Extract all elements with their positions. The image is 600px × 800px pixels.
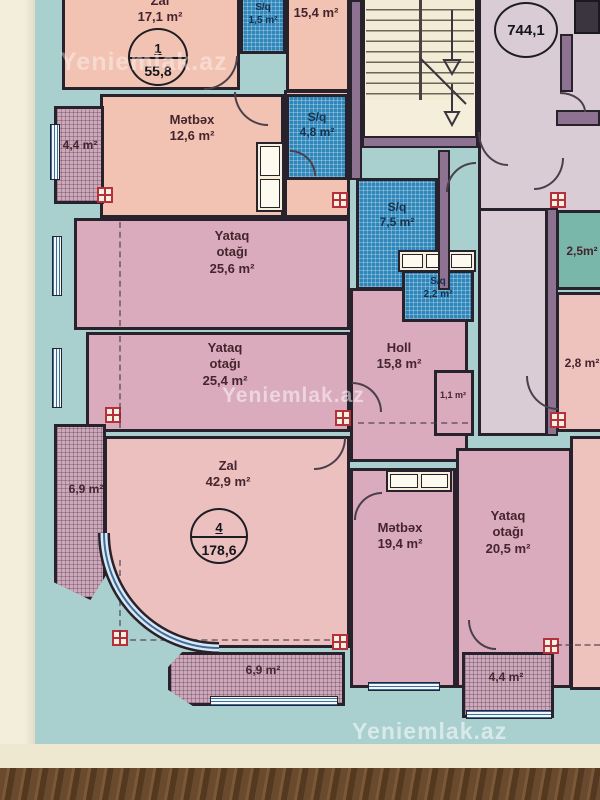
label-zal-apt4: Zal42,9 m² — [206, 458, 251, 491]
elevator-shaft — [574, 0, 600, 34]
column-icon — [543, 638, 559, 654]
window-balc69B — [210, 696, 338, 706]
column-icon — [97, 187, 113, 203]
balcony-6-9-left — [54, 424, 106, 600]
paper-bottom-strip — [0, 744, 600, 770]
label-sq-1-5: S/q1,5 m² — [249, 2, 278, 27]
column-icon — [550, 412, 566, 428]
label-balc-69-bottom: 6,9 m² — [246, 663, 281, 678]
wall-topright-v — [560, 34, 573, 92]
axis-dash — [358, 422, 468, 424]
watermark: Yeniemlak.az — [60, 48, 228, 77]
axis-dash — [556, 644, 600, 646]
label-balc-44-left: 4,4 m² — [63, 138, 98, 153]
window-balc44L — [50, 124, 60, 180]
label-metbex-apt1: Mətbəx12,6 m² — [170, 112, 215, 145]
kitchen-counter-icon — [386, 470, 452, 492]
paper-edge — [0, 0, 35, 770]
label-balc-44-bottom: 4,4 m² — [489, 670, 524, 685]
window-left-1 — [52, 236, 62, 296]
label-2-8: 2,8 m² — [565, 356, 600, 371]
axis-dash — [119, 336, 121, 428]
label-yataq-25-6: Yataqotağı25,6 m² — [210, 228, 255, 277]
wall-topright-h — [556, 110, 600, 126]
label-15-4: 15,4 m² — [294, 5, 339, 21]
balcony-4-4-bottom — [462, 652, 554, 718]
column-icon — [332, 192, 348, 208]
wall-sq75-right — [438, 150, 450, 290]
column-icon — [550, 192, 566, 208]
column-icon — [335, 410, 351, 426]
axis-dash — [119, 560, 121, 636]
washer-counter-icon — [398, 250, 476, 272]
axis-dash — [119, 222, 121, 326]
wall-stair-bottom — [362, 136, 478, 148]
label-sq-7-5: S/q7,5 m² — [380, 200, 415, 230]
label-sq-2-2: S/q2,2 m² — [424, 276, 453, 301]
window-left-2 — [52, 348, 62, 408]
stairs-divider — [419, 0, 422, 100]
label-yataq-20-5: Yataqotağı20,5 m² — [486, 508, 531, 557]
apt4-number-badge: 4 178,6 — [190, 508, 248, 564]
watermark: Yeniemlak.az — [352, 718, 507, 745]
label-balc-69-left: 6,9 m² — [69, 482, 104, 497]
floorplan-photo: Zal17,1 m² S/q1,5 m² 15,4 m² Mətbəx12,6 … — [0, 0, 600, 800]
label-1-1: 1,1 m² — [440, 390, 466, 401]
label-2-5: 2,5m² — [566, 244, 597, 259]
column-icon — [332, 634, 348, 650]
wall-stair-left — [350, 0, 362, 180]
label-metbex-apt4: Mətbəx19,4 m² — [378, 520, 423, 553]
closet-1-1 — [434, 370, 474, 436]
window-metbex4 — [368, 682, 440, 691]
label-sq-4-8: S/q4,8 m² — [300, 110, 335, 140]
building-total-badge: 744,1 — [494, 2, 558, 58]
label-holl: Holl15,8 m² — [377, 340, 422, 373]
axis-dash — [130, 639, 330, 641]
label-zal-apt1: Zal17,1 m² — [138, 0, 183, 26]
label-yataq-25-4: Yataqotağı25,4 m² — [203, 340, 248, 389]
wood-floor — [0, 768, 600, 800]
watermark: Yeniemlak.az — [222, 384, 365, 408]
room-right-cut — [570, 436, 600, 690]
counter-icon-apt1 — [256, 142, 284, 212]
